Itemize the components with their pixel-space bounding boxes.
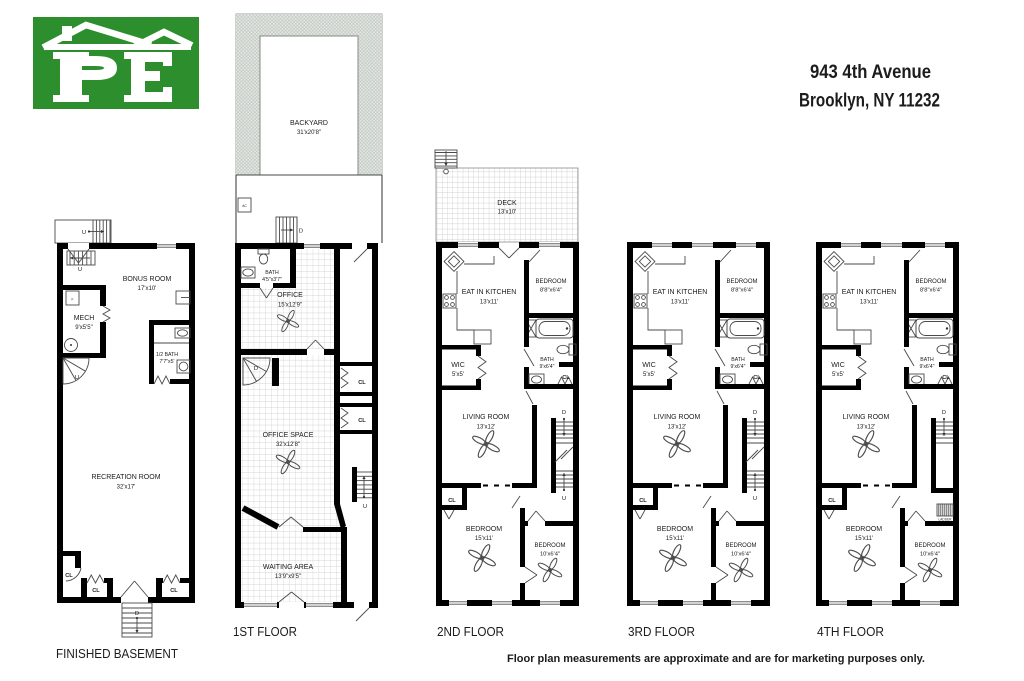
svg-text:LIVING ROOM: LIVING ROOM [654,414,701,421]
svg-text:WIC: WIC [642,362,656,369]
svg-text:RECREATION ROOM: RECREATION ROOM [91,474,160,481]
svg-text:CL: CL [753,375,761,381]
svg-text:1ST FLOOR: 1ST FLOOR [233,625,297,639]
svg-text:32'x12'8": 32'x12'8" [276,442,300,448]
svg-text:D: D [942,410,946,416]
svg-text:13'x11': 13'x11' [860,300,878,306]
svg-text:32'x17': 32'x17' [117,485,136,491]
svg-text:D: D [299,229,303,235]
svg-text:Floor plan measurements are ap: Floor plan measurements are approximate … [507,653,925,665]
svg-text:9'x5'5": 9'x5'5" [75,325,92,331]
svg-text:BEDROOM: BEDROOM [535,279,566,285]
svg-text:CL: CL [92,588,100,594]
svg-text:15'x12'9": 15'x12'9" [278,303,302,309]
svg-text:WAITING AREA: WAITING AREA [263,564,314,571]
svg-text:943 4th Avenue: 943 4th Avenue [810,62,931,83]
svg-text:9'x6'4": 9'x6'4" [539,364,554,370]
svg-text:BEDROOM: BEDROOM [846,526,882,533]
svg-text:5'x5': 5'x5' [832,372,844,378]
svg-text:D: D [562,410,566,416]
svg-text:LIVING ROOM: LIVING ROOM [843,414,890,421]
svg-text:8'8"x6'4": 8'8"x6'4" [920,288,942,294]
svg-text:D: D [753,410,757,416]
svg-text:CL: CL [562,375,570,381]
svg-text:13'x10': 13'x10' [498,210,517,216]
svg-text:LADDER: LADDER [939,518,953,522]
svg-text:BEDROOM: BEDROOM [466,526,502,533]
svg-text:CL: CL [448,498,456,504]
svg-text:F: F [72,298,74,302]
svg-text:D: D [135,611,139,617]
svg-text:OFFICE SPACE: OFFICE SPACE [263,432,314,439]
svg-text:10'x6'4": 10'x6'4" [920,552,940,558]
svg-text:OFFICE: OFFICE [277,292,303,299]
svg-text:BONUS ROOM: BONUS ROOM [123,276,172,283]
svg-text:BEDROOM: BEDROOM [914,543,945,549]
svg-text:WIC: WIC [451,362,465,369]
svg-text:13'x12': 13'x12' [857,425,876,431]
svg-text:BATH: BATH [731,357,745,363]
svg-text:BEDROOM: BEDROOM [725,543,756,549]
svg-text:15'x11': 15'x11' [855,536,873,542]
svg-text:DECK: DECK [497,200,517,207]
svg-text:13'x12': 13'x12' [668,425,687,431]
svg-text:8'8"x6'4": 8'8"x6'4" [731,288,753,294]
svg-text:EAT IN KITCHEN: EAT IN KITCHEN [842,289,897,296]
svg-text:BEDROOM: BEDROOM [657,526,693,533]
svg-text:5'x5': 5'x5' [643,372,655,378]
svg-text:CL: CL [942,375,950,381]
svg-text:BEDROOM: BEDROOM [726,279,757,285]
svg-text:U: U [753,496,757,502]
svg-text:CL: CL [358,380,366,386]
svg-text:BATH: BATH [540,357,554,363]
svg-text:10'x6'4": 10'x6'4" [540,552,560,558]
svg-text:EAT IN KITCHEN: EAT IN KITCHEN [462,289,517,296]
svg-text:15'x11': 15'x11' [475,536,493,542]
svg-text:LIVING ROOM: LIVING ROOM [463,414,510,421]
svg-text:5'x5': 5'x5' [452,372,464,378]
svg-text:31'x20'8": 31'x20'8" [297,130,321,136]
svg-text:FINISHED BASEMENT: FINISHED BASEMENT [56,647,178,661]
svg-text:U: U [562,496,566,502]
svg-text:D: D [254,366,258,372]
svg-text:1/2 BATH: 1/2 BATH [156,352,178,358]
svg-text:U: U [82,230,86,236]
svg-text:BEDROOM: BEDROOM [915,279,946,285]
svg-text:3RD FLOOR: 3RD FLOOR [628,625,695,639]
svg-text:CL: CL [828,498,836,504]
svg-text:13'x12': 13'x12' [477,425,496,431]
svg-text:AC: AC [242,204,247,208]
svg-text:10'x6'4": 10'x6'4" [731,552,751,558]
svg-text:CL: CL [65,573,73,579]
svg-text:U: U [78,267,82,273]
svg-text:Brooklyn, NY 11232: Brooklyn, NY 11232 [799,91,940,112]
svg-text:U: U [75,375,79,381]
svg-text:9'x6'4": 9'x6'4" [730,364,745,370]
svg-text:WIC: WIC [831,362,845,369]
svg-text:EAT IN KITCHEN: EAT IN KITCHEN [653,289,708,296]
svg-text:4TH FLOOR: 4TH FLOOR [817,625,884,639]
svg-text:13'9"x9'5": 13'9"x9'5" [275,574,301,580]
svg-text:4'5"x3'7": 4'5"x3'7" [262,277,282,283]
svg-text:8'8"x6'4": 8'8"x6'4" [540,288,562,294]
svg-text:9'x6'4": 9'x6'4" [919,364,934,370]
svg-text:2ND FLOOR: 2ND FLOOR [437,625,504,639]
svg-text:CL: CL [170,588,178,594]
svg-text:13'x11': 13'x11' [480,300,498,306]
svg-text:BACKYARD: BACKYARD [290,120,328,127]
svg-text:CL: CL [358,418,366,424]
svg-text:13'x11': 13'x11' [671,300,689,306]
svg-text:BEDROOM: BEDROOM [534,543,565,549]
svg-text:17'x10': 17'x10' [138,286,157,292]
svg-text:CL: CL [639,498,647,504]
svg-text:15'x11': 15'x11' [666,536,684,542]
svg-text:U: U [363,504,367,510]
svg-text:BATH: BATH [920,357,934,363]
svg-text:MECH: MECH [74,315,95,322]
svg-text:BATH: BATH [265,270,279,276]
svg-text:7'7"x5': 7'7"x5' [159,359,174,365]
